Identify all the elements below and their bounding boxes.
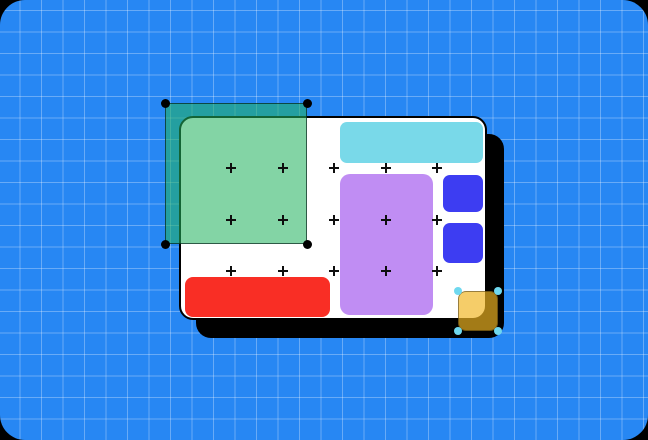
blue-square-shape-bottom[interactable] xyxy=(443,223,483,263)
selection-handle-cyan[interactable] xyxy=(494,327,502,335)
plus-marker xyxy=(329,266,339,276)
plus-marker xyxy=(278,163,288,173)
plus-marker xyxy=(381,215,391,225)
purple-rect-shape[interactable] xyxy=(340,174,433,315)
selection-handle-black[interactable] xyxy=(303,240,312,249)
selection-handle-cyan[interactable] xyxy=(494,287,502,295)
plus-marker xyxy=(432,163,442,173)
plus-marker xyxy=(278,215,288,225)
yellow-selected-square[interactable] xyxy=(458,291,498,331)
blue-square-shape-top[interactable] xyxy=(443,175,483,212)
illustration-scene xyxy=(0,0,648,440)
red-bar-shape[interactable] xyxy=(185,277,330,317)
plus-marker xyxy=(381,266,391,276)
plus-marker xyxy=(226,266,236,276)
cyan-bar-shape[interactable] xyxy=(340,122,483,163)
plus-marker xyxy=(226,163,236,173)
selection-handle-cyan[interactable] xyxy=(454,327,462,335)
plus-marker xyxy=(329,215,339,225)
plus-marker xyxy=(329,163,339,173)
selection-handle-black[interactable] xyxy=(303,99,312,108)
selection-handle-cyan[interactable] xyxy=(454,287,462,295)
plus-marker xyxy=(381,163,391,173)
selection-handle-black[interactable] xyxy=(161,240,170,249)
plus-marker xyxy=(226,215,236,225)
plus-marker xyxy=(278,266,288,276)
plus-marker xyxy=(432,266,442,276)
selection-handle-black[interactable] xyxy=(161,99,170,108)
plus-marker xyxy=(432,215,442,225)
